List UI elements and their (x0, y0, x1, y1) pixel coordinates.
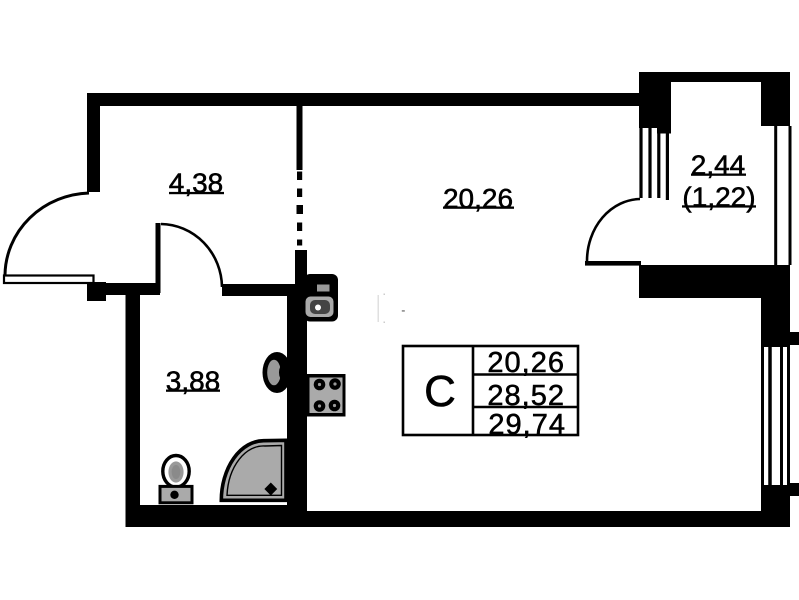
svg-text:3,88: 3,88 (166, 366, 221, 397)
svg-text:С: С (424, 367, 456, 416)
svg-text:20,26: 20,26 (487, 347, 565, 379)
svg-text:28,52: 28,52 (487, 380, 565, 412)
svg-text:20,26: 20,26 (443, 183, 513, 214)
svg-text:(1,22): (1,22) (682, 181, 755, 212)
svg-text:2,44: 2,44 (691, 150, 746, 181)
svg-text:29,74: 29,74 (488, 409, 566, 441)
